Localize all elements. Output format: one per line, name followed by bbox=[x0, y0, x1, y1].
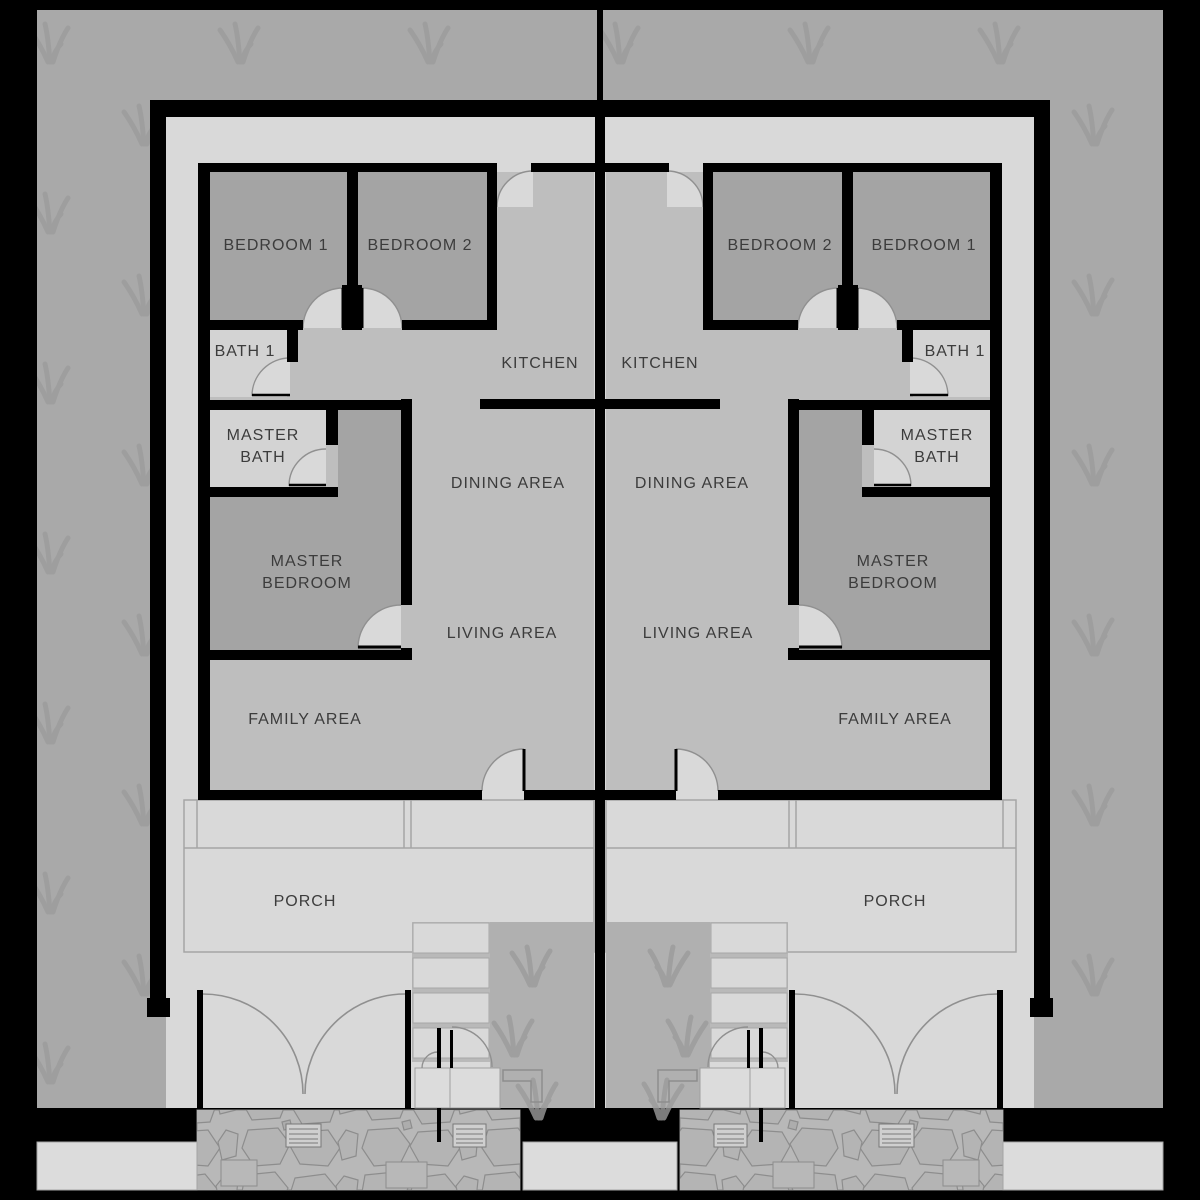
room-label-right-living: LIVING AREA bbox=[643, 625, 754, 642]
room-label-right-master-bedroom-line1: MASTER bbox=[857, 553, 930, 570]
room-label-right-porch: PORCH bbox=[864, 893, 927, 910]
room-label-left-kitchen: KITCHEN bbox=[501, 355, 578, 372]
room-label-left-bath1: BATH 1 bbox=[215, 343, 276, 360]
room-label-left-master-bedroom-line2: BEDROOM bbox=[262, 575, 352, 592]
room-label-right-bath1: BATH 1 bbox=[925, 343, 986, 360]
room-label-right-family: FAMILY AREA bbox=[838, 711, 952, 728]
room-label-right-bedroom2: BEDROOM 2 bbox=[727, 237, 832, 254]
room-label-left-living: LIVING AREA bbox=[447, 625, 558, 642]
room-label-left-dining: DINING AREA bbox=[451, 475, 565, 492]
floor-plan-canvas: BEDROOM 1 BEDROOM 2 BATH 1 MASTER BATH M… bbox=[0, 0, 1200, 1200]
room-label-right-master-bath-line2: BATH bbox=[914, 449, 959, 466]
room-label-left-master-bath-line1: MASTER bbox=[227, 427, 300, 444]
room-label-right-master-bath-line1: MASTER bbox=[901, 427, 974, 444]
room-label-left-master-bedroom-line1: MASTER bbox=[271, 553, 344, 570]
room-label-left-porch: PORCH bbox=[274, 893, 337, 910]
room-label-right-bedroom1: BEDROOM 1 bbox=[871, 237, 976, 254]
room-label-left-master-bath-line2: BATH bbox=[240, 449, 285, 466]
room-label-left-bedroom1: BEDROOM 1 bbox=[223, 237, 328, 254]
room-label-left-family: FAMILY AREA bbox=[248, 711, 362, 728]
room-label-left-bedroom2: BEDROOM 2 bbox=[367, 237, 472, 254]
room-label-right-master-bedroom-line2: BEDROOM bbox=[848, 575, 938, 592]
room-label-right-kitchen: KITCHEN bbox=[621, 355, 698, 372]
room-label-right-dining: DINING AREA bbox=[635, 475, 749, 492]
floor-plan-drawing: BEDROOM 1 BEDROOM 2 BATH 1 MASTER BATH M… bbox=[0, 0, 1200, 1200]
